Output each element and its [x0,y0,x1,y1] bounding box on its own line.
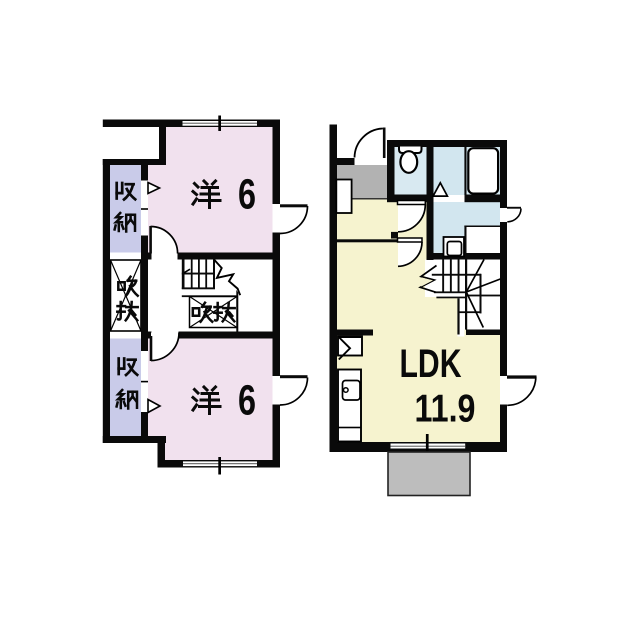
svg-text:6: 6 [238,377,256,425]
svg-text:6: 6 [238,171,256,219]
svg-text:LDK: LDK [400,342,462,386]
svg-text:11.9: 11.9 [415,388,476,431]
